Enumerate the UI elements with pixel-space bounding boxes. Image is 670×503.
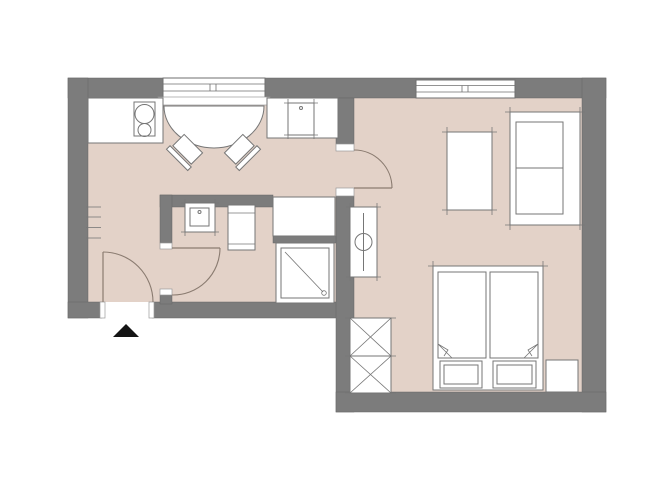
- wall-bathroom-left-lower: [160, 295, 172, 304]
- door-jamb: [100, 302, 105, 318]
- window-sill: [158, 97, 270, 105]
- wall-left: [68, 78, 88, 318]
- wall-bottom-right: [336, 392, 606, 412]
- window-living: [416, 80, 515, 98]
- floor-doorway-bath: [160, 249, 172, 289]
- wall-under-cabinet: [273, 236, 336, 243]
- wall-bottom-left-b: [152, 302, 338, 318]
- wall-bathroom-top: [160, 195, 273, 207]
- wall-center-vertical-upper: [336, 98, 354, 144]
- floor-plan: [0, 0, 670, 503]
- door-jamb: [160, 289, 172, 295]
- wall-bottom-left-a: [68, 302, 102, 318]
- wardrobe: [345, 318, 396, 393]
- wall-top: [68, 78, 606, 98]
- double-bed: [428, 261, 548, 390]
- floor-doorway-living: [336, 151, 354, 188]
- door-jamb: [160, 243, 172, 249]
- table: [442, 127, 497, 215]
- entrance-marker-triangle: [113, 324, 139, 337]
- built-in-cabinet: [273, 197, 335, 236]
- sofa: [505, 107, 585, 230]
- washbasin: [181, 199, 219, 236]
- kitchen-sink: [284, 99, 318, 139]
- door-jamb: [336, 144, 354, 151]
- nightstand: [546, 360, 578, 392]
- wall-right: [582, 78, 606, 412]
- radiator: [346, 203, 381, 281]
- door-jamb: [336, 188, 354, 196]
- wall-bathroom-left-upper: [160, 195, 172, 243]
- cooktop: [134, 102, 155, 137]
- shower: [276, 243, 334, 303]
- toilet: [228, 205, 255, 250]
- door-jamb: [149, 302, 154, 318]
- window-kitchen: [163, 78, 265, 98]
